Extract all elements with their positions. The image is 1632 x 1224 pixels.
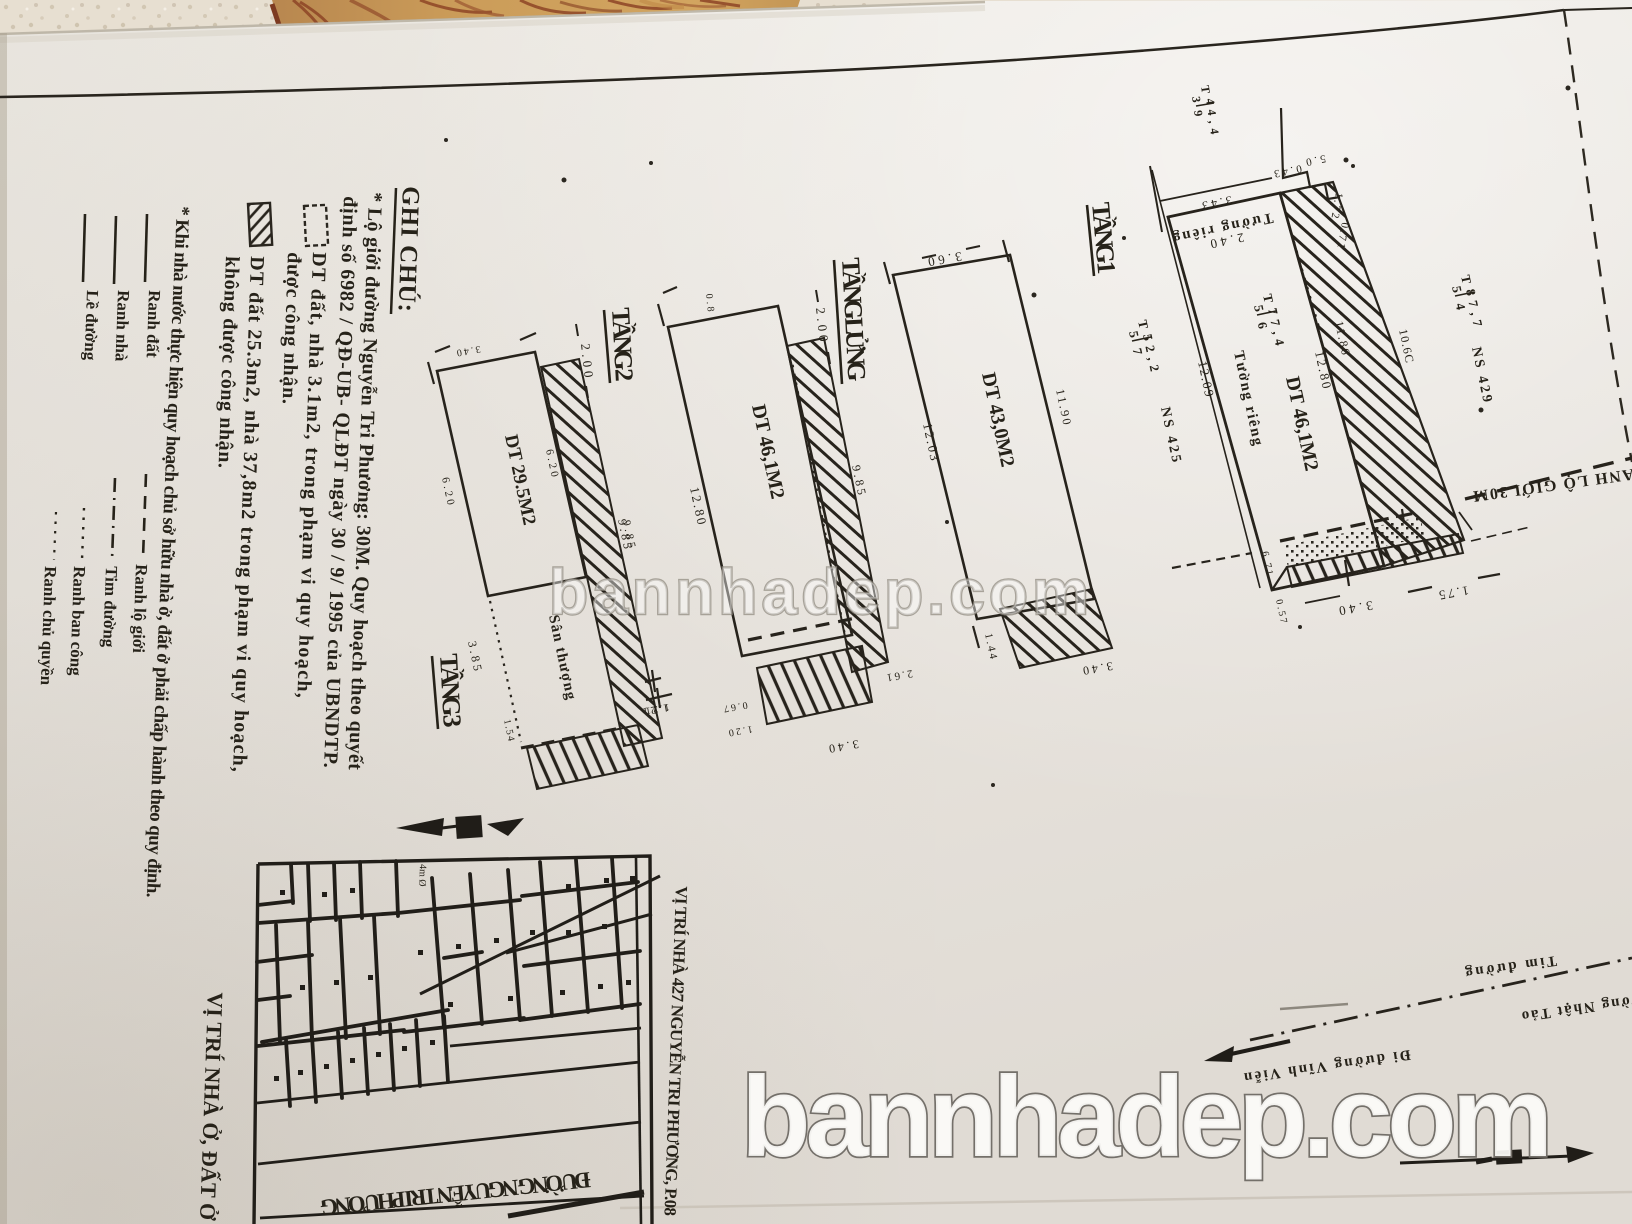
svg-text:Ranh lộ giới: Ranh lộ giới bbox=[129, 564, 151, 654]
svg-text:4m Ø: 4m Ø bbox=[416, 864, 428, 887]
svg-text:Ranh đất: Ranh đất bbox=[143, 290, 164, 359]
svg-text:TẦNG 3: TẦNG 3 bbox=[434, 653, 467, 728]
svg-text:bannhadep.com: bannhadep.com bbox=[741, 1054, 1553, 1181]
svg-text:GHI CHÚ:: GHI CHÚ: bbox=[393, 186, 425, 314]
svg-text:0.8: 0.8 bbox=[703, 293, 716, 312]
svg-text:TẦNG 2: TẦNG 2 bbox=[606, 307, 639, 382]
svg-text:Lề đường: Lề đường bbox=[81, 290, 102, 361]
svg-text:Tim đường: Tim đường bbox=[99, 566, 121, 648]
svg-text:Ranh nhà: Ranh nhà bbox=[111, 290, 132, 362]
svg-text:Ranh ban công: Ranh ban công bbox=[66, 566, 89, 677]
